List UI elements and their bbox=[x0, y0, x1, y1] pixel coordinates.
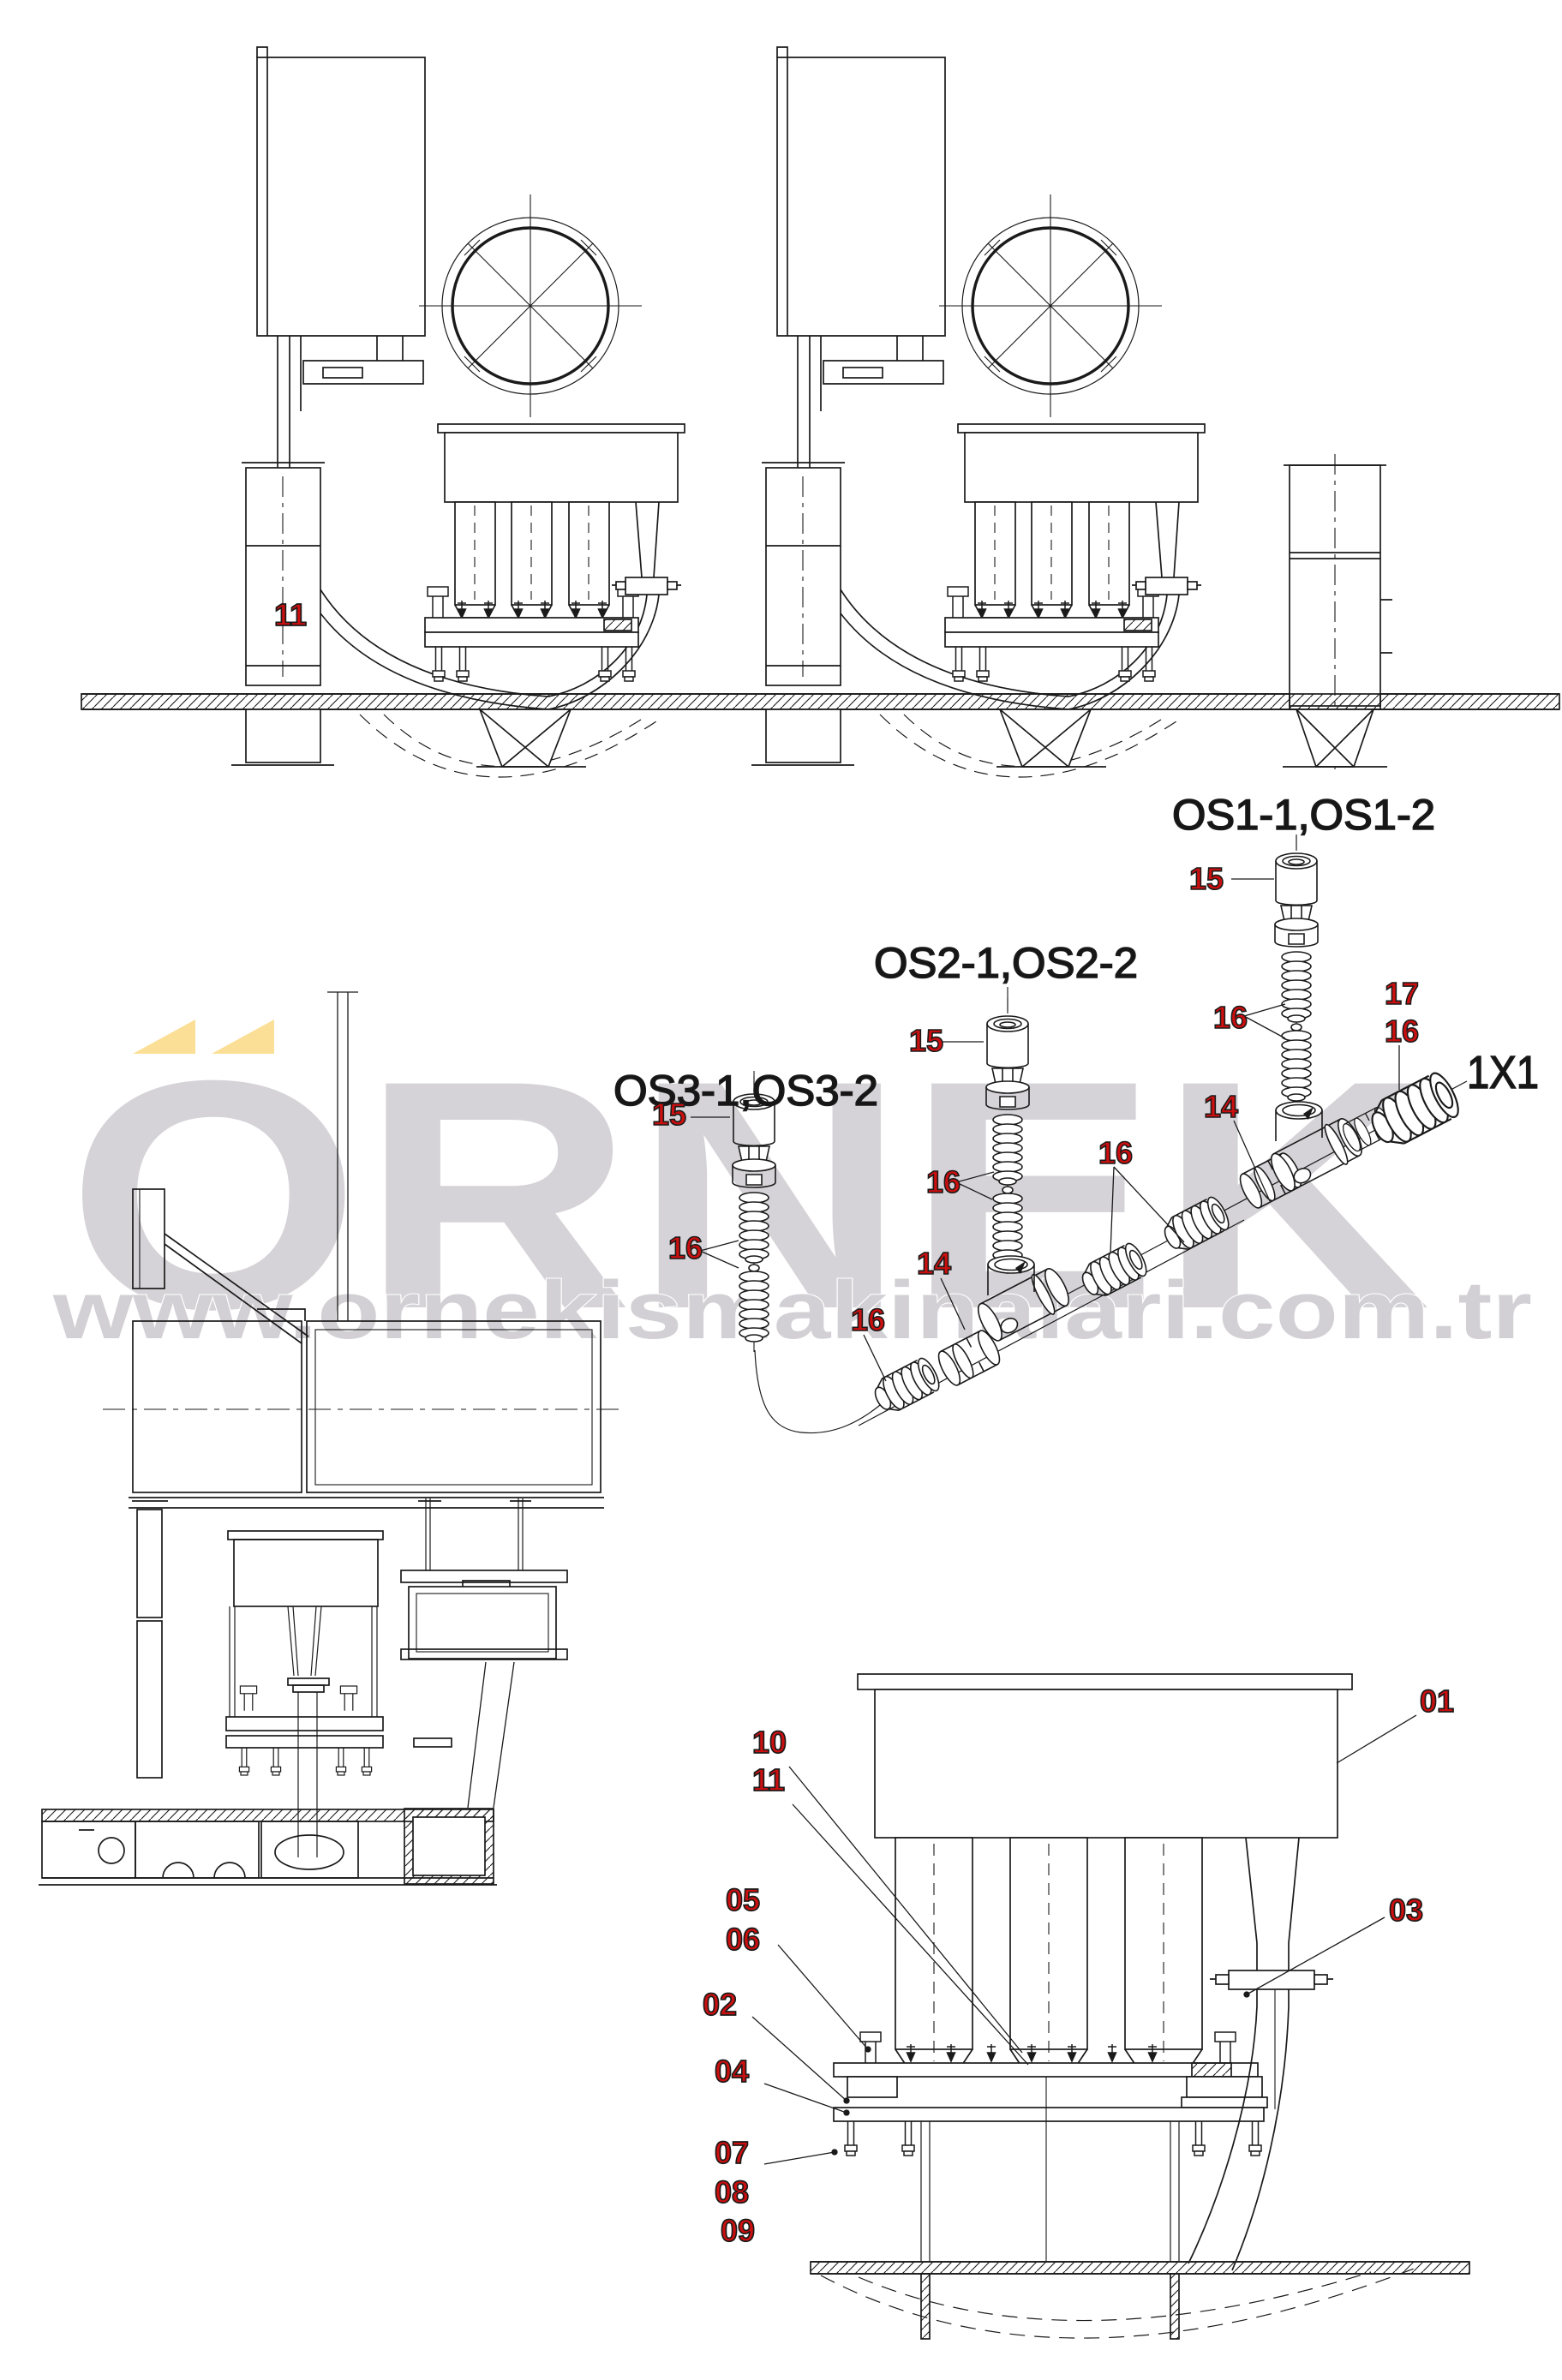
callout-16-os3: 16 bbox=[668, 1230, 703, 1265]
callout-02: 02 bbox=[703, 1987, 737, 2022]
title-os1: OS1-1,OS1-2 bbox=[1172, 791, 1435, 839]
cad-drawing: ORNEK www.ornekismakinalari.com.tr 11 bbox=[0, 0, 1562, 2380]
callout-05: 05 bbox=[726, 1882, 760, 1917]
callout-15-os2: 15 bbox=[909, 1023, 943, 1058]
callout-10: 10 bbox=[752, 1725, 787, 1760]
callout-01: 01 bbox=[1420, 1683, 1454, 1719]
callout-03: 03 bbox=[1389, 1893, 1423, 1928]
callout-08: 08 bbox=[715, 2174, 749, 2210]
callout-16-os3-plug: 16 bbox=[851, 1302, 885, 1337]
detail-view: 01 10 11 05 06 02 04 07 08 09 03 bbox=[703, 1674, 1469, 2339]
callout-07: 07 bbox=[715, 2135, 749, 2170]
callout-17-os1: 17 bbox=[1385, 976, 1419, 1011]
title-os2: OS2-1,OS2-2 bbox=[874, 939, 1138, 987]
cad-sheet: ORNEK www.ornekismakinalari.com.tr 11 bbox=[0, 0, 1562, 2380]
size-label-1x1: 1X1 bbox=[1467, 1047, 1539, 1098]
callout-06: 06 bbox=[726, 1922, 760, 1957]
callout-16-os2: 16 bbox=[926, 1164, 961, 1199]
callout-15-os3: 15 bbox=[652, 1097, 686, 1132]
callout-04: 04 bbox=[715, 2054, 749, 2089]
machine-left bbox=[231, 47, 685, 777]
callout-15-os1: 15 bbox=[1189, 861, 1224, 896]
callout-16-os1-plug: 16 bbox=[1385, 1014, 1419, 1049]
callout-16-os1: 16 bbox=[1213, 1000, 1248, 1035]
callout-14-os2: 14 bbox=[917, 1246, 951, 1281]
top-view-machines: 11 bbox=[81, 47, 1559, 777]
callout-14-os1: 14 bbox=[1204, 1089, 1238, 1124]
watermark-url: www.ornekismakinalari.com.tr bbox=[52, 1265, 1532, 1356]
callout-16-os2-plugs: 16 bbox=[1098, 1135, 1133, 1170]
callout-09: 09 bbox=[721, 2213, 755, 2248]
spare-pedestal bbox=[1283, 454, 1392, 775]
callout-11-hose: 11 bbox=[274, 597, 307, 632]
callout-11: 11 bbox=[752, 1762, 785, 1797]
machine-right bbox=[751, 47, 1205, 777]
